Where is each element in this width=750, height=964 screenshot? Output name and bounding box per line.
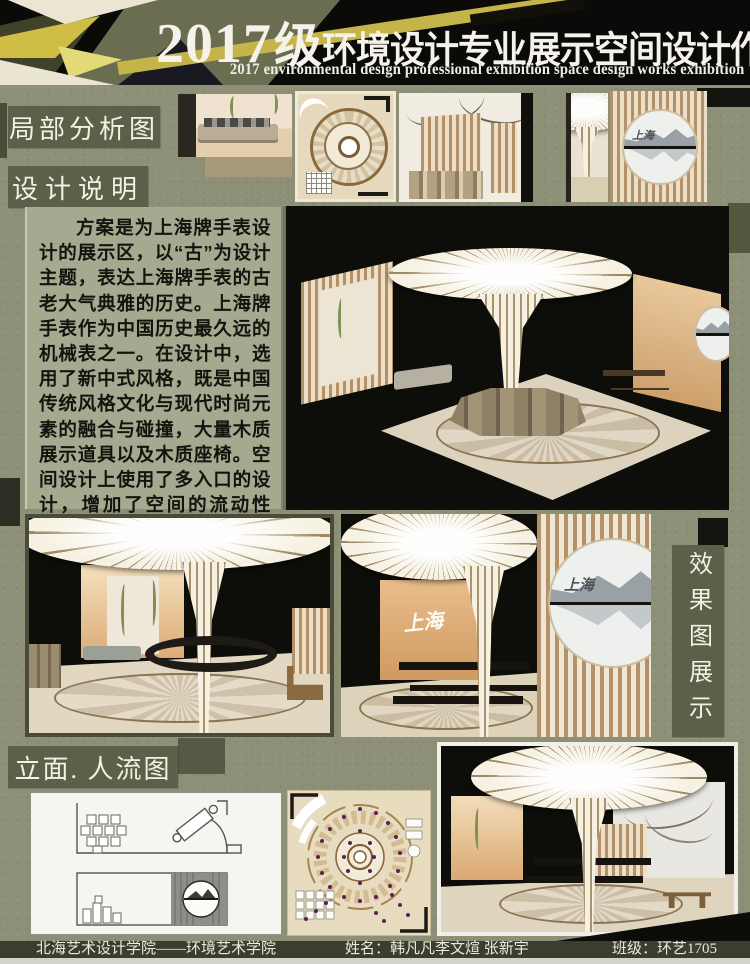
alcove-leaf — [121, 584, 133, 636]
shanghai-calligraphy: 上海 — [402, 604, 445, 637]
canopy — [566, 93, 608, 131]
main-perspective-render — [283, 206, 729, 510]
plant-leaf — [266, 94, 278, 114]
header-banner: 2017级环境设计专业展示空间设计作品展 2017 environmental … — [0, 0, 750, 85]
title-english-subtitle: 2017 environmental design professional e… — [229, 61, 744, 79]
render-tree-closeup-left — [25, 514, 334, 737]
label-design-note-text: 设计说明 — [12, 169, 144, 206]
floor-medallion — [54, 673, 306, 723]
circular-display-case — [145, 636, 277, 672]
footer-school: 北海艺术设计学院——环境艺术学院 — [36, 941, 276, 958]
left-pedestals — [29, 644, 61, 688]
plan-core — [338, 136, 360, 158]
deco-left-dark-block — [0, 478, 20, 526]
moon-divider-line — [696, 333, 729, 336]
moon-divider-line — [550, 602, 651, 605]
label-design-note: 设计说明 — [8, 166, 148, 208]
sofa-back-wall — [178, 94, 196, 157]
label-elevation-flow-text: 立面. 人流图 — [14, 749, 171, 786]
elevation-drawings-panel — [30, 792, 282, 935]
label-effect-display-text: 效果图展示 — [681, 551, 716, 731]
right-dark-edge — [521, 93, 533, 202]
footer-bar: 北海艺术设计学院——环境艺术学院 姓名：韩凡凡李文煊 张新宇 班级：环艺1705 — [0, 941, 750, 958]
shanghai-calligraphy: 上海 — [632, 127, 654, 143]
footer-light-strip — [0, 958, 750, 964]
mountain-silhouette — [696, 319, 729, 334]
canopy — [25, 514, 334, 570]
display-tables — [399, 662, 529, 670]
poster: 2017级环境设计专业展示空间设计作品展 2017 environmental … — [0, 0, 750, 964]
label-local-analysis-text: 局部分析图 — [9, 109, 159, 146]
footer-names: 姓名：韩凡凡李文煊 张新宇 — [345, 941, 529, 958]
right-slat-screen — [292, 608, 330, 674]
canopy — [389, 248, 632, 300]
thumb-moon-slat-wall: 上海 — [610, 91, 707, 202]
plant-leaf — [230, 96, 243, 118]
thumb-sofa-lounge-render — [178, 94, 292, 157]
thumb-floor-plan — [295, 91, 396, 202]
label-elevation-flow: 立面. 人流图 — [8, 746, 178, 788]
slat-screen — [491, 123, 517, 193]
display-pedestals — [409, 171, 483, 199]
deco-black-square — [698, 518, 728, 547]
people-flow-plan — [287, 790, 431, 936]
thumb-tree-strip — [566, 93, 608, 202]
plan-wall-corner — [364, 96, 390, 112]
alcove-leaf — [475, 808, 486, 850]
footer-class: 班级：环艺1705 — [612, 941, 717, 958]
elevation-line-art — [31, 793, 281, 934]
render-bottom-large — [437, 742, 738, 936]
label-effect-display: 效果图展示 — [672, 545, 724, 737]
side-shadow — [566, 93, 571, 202]
plan-wall-corner — [358, 182, 388, 196]
deco-right-olive-block — [728, 203, 750, 253]
design-note-panel: 方案是为上海牌手表设计的展示区，以“古”为设计主题，表达上海牌手表的古老大气典雅… — [25, 207, 283, 509]
label-local-analysis: 局部分析图 — [8, 106, 160, 148]
deco-left-edge — [0, 103, 7, 158]
tea-table — [603, 370, 665, 376]
canopy — [341, 514, 537, 580]
deco-tan-strip — [205, 157, 292, 177]
mountain-reflection — [550, 603, 651, 636]
render-tree-closeup-right: 上海 上海 — [341, 514, 651, 737]
shanghai-calligraphy: 上海 — [564, 574, 594, 595]
deco-dark-olive-block — [178, 738, 225, 774]
moon-divider-line — [624, 146, 696, 149]
mural-leaf — [338, 297, 349, 340]
moon-circle-art: 上海 — [622, 109, 698, 185]
sofa — [83, 646, 141, 660]
sofa-cushions — [204, 118, 270, 127]
floor-medallion — [359, 686, 533, 730]
flow-plan-art — [288, 791, 430, 935]
trunk — [574, 127, 600, 177]
lit-alcove — [451, 796, 523, 880]
left-wall-mural — [320, 277, 378, 386]
mountain-reflection — [624, 147, 696, 166]
plan-grid — [306, 172, 332, 194]
alcove-leaf — [145, 580, 156, 626]
sofa — [394, 364, 452, 390]
thumb-slat-room-render — [399, 93, 533, 202]
floor-tile — [566, 177, 608, 202]
pedestal-cluster — [450, 388, 586, 436]
